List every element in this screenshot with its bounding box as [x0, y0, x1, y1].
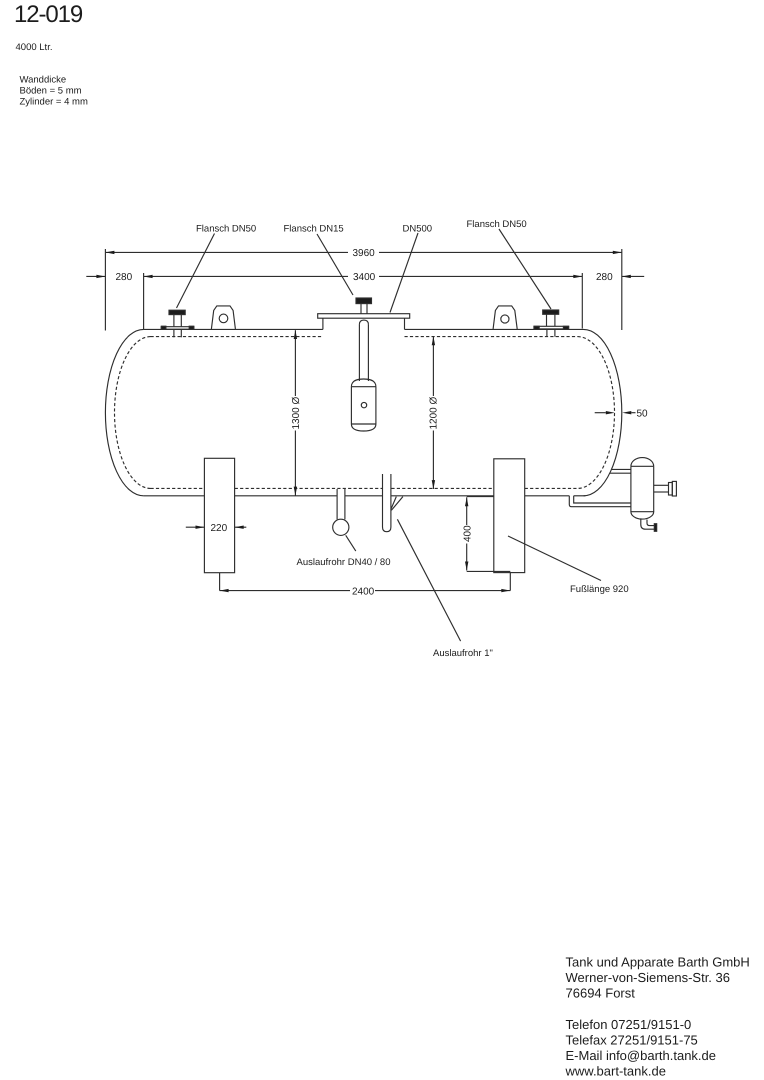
svg-text:Werner-von-Siemens-Str. 36: Werner-von-Siemens-Str. 36 — [566, 970, 731, 985]
svg-text:Telefon 07251/9151-0: Telefon 07251/9151-0 — [566, 1017, 692, 1032]
svg-text:1300 Ø: 1300 Ø — [291, 396, 302, 429]
svg-text:Böden = 5 mm: Böden = 5 mm — [20, 85, 82, 96]
svg-text:12-019: 12-019 — [14, 1, 83, 28]
svg-text:Auslaufrohr 1": Auslaufrohr 1" — [433, 648, 493, 659]
svg-text:www.bart-tank.de: www.bart-tank.de — [565, 1063, 666, 1078]
svg-text:1200 Ø: 1200 Ø — [429, 396, 440, 429]
svg-text:220: 220 — [211, 523, 228, 534]
svg-text:Flansch DN50: Flansch DN50 — [196, 224, 256, 235]
svg-text:3960: 3960 — [353, 248, 376, 259]
svg-text:3400: 3400 — [353, 272, 376, 283]
svg-text:280: 280 — [596, 272, 613, 283]
svg-text:DN500: DN500 — [403, 224, 433, 235]
svg-text:Telefax 27251/9151-75: Telefax 27251/9151-75 — [566, 1032, 698, 1047]
svg-text:Auslaufrohr DN40 / 80: Auslaufrohr DN40 / 80 — [297, 557, 391, 568]
svg-text:280: 280 — [116, 272, 133, 283]
svg-text:Zylinder = 4 mm: Zylinder = 4 mm — [20, 96, 88, 107]
svg-text:4000 Ltr.: 4000 Ltr. — [16, 42, 53, 53]
svg-text:E-Mail info@barth.tank.de: E-Mail info@barth.tank.de — [566, 1048, 717, 1063]
svg-text:76694 Forst: 76694 Forst — [566, 986, 636, 1001]
svg-text:Flansch DN50: Flansch DN50 — [467, 219, 527, 230]
svg-text:400: 400 — [462, 525, 473, 542]
svg-text:50: 50 — [637, 409, 649, 420]
svg-text:Wanddicke: Wanddicke — [20, 74, 67, 85]
svg-text:Flansch DN15: Flansch DN15 — [284, 224, 344, 235]
svg-text:Fußlänge 920: Fußlänge 920 — [570, 584, 629, 595]
svg-text:Tank und Apparate Barth GmbH: Tank und Apparate Barth GmbH — [566, 955, 750, 970]
svg-text:2400: 2400 — [352, 586, 375, 597]
